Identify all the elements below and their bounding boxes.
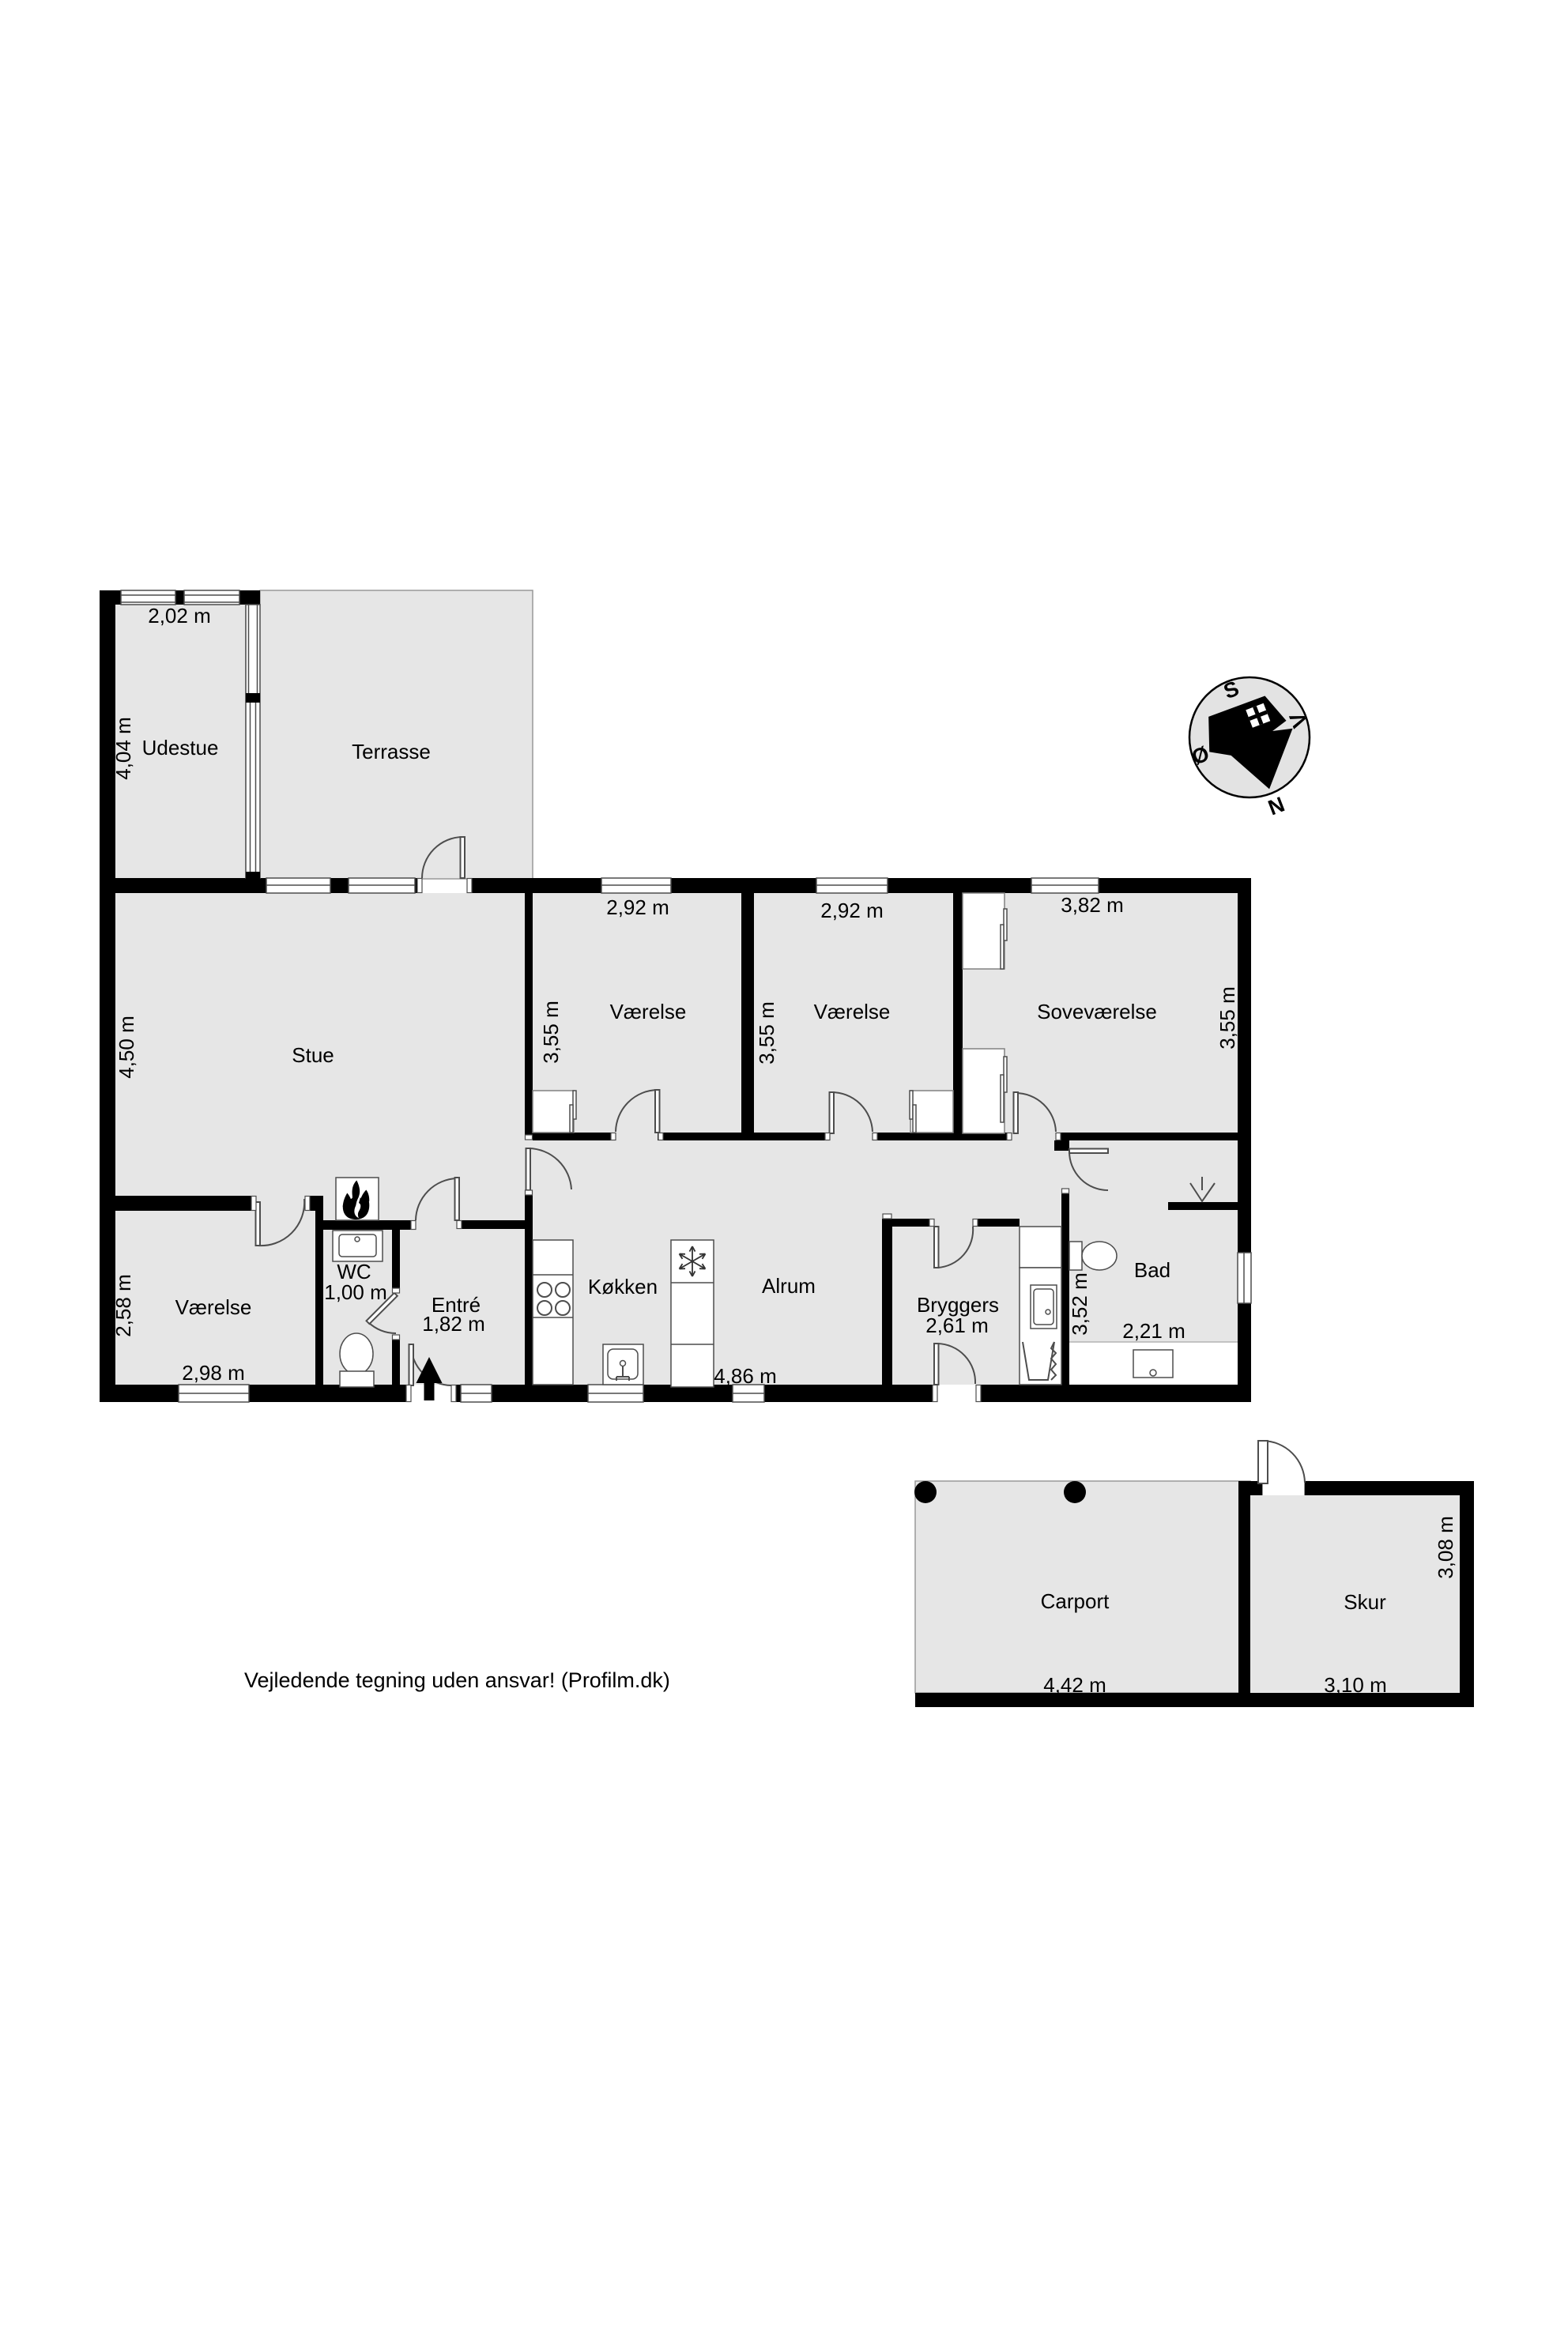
svg-text:2,92 m: 2,92 m	[820, 899, 884, 922]
svg-text:Stue: Stue	[292, 1043, 334, 1067]
svg-text:Bad: Bad	[1134, 1258, 1170, 1282]
svg-text:Vejledende tegning uden ansvar: Vejledende tegning uden ansvar! (Profilm…	[244, 1668, 670, 1692]
svg-text:2,21 m: 2,21 m	[1122, 1319, 1185, 1343]
svg-text:2,92 m: 2,92 m	[606, 895, 669, 919]
svg-text:Køkken: Køkken	[588, 1275, 658, 1298]
svg-text:Udestue: Udestue	[142, 736, 219, 759]
svg-text:1,00 m: 1,00 m	[324, 1280, 387, 1304]
svg-text:Værelse: Værelse	[814, 1000, 891, 1023]
svg-text:3,55 m: 3,55 m	[755, 1001, 778, 1065]
svg-text:3,55 m: 3,55 m	[1216, 986, 1239, 1050]
svg-text:4,50 m: 4,50 m	[115, 1016, 138, 1079]
svg-text:Soveværelse: Soveværelse	[1037, 1000, 1157, 1023]
svg-text:1,82 m: 1,82 m	[422, 1312, 485, 1336]
svg-text:Terrasse: Terrasse	[352, 740, 431, 763]
svg-text:3,55 m: 3,55 m	[539, 1001, 563, 1064]
svg-text:3,08 m: 3,08 m	[1434, 1516, 1457, 1579]
svg-text:Værelse: Værelse	[175, 1295, 252, 1319]
svg-text:3,52 m: 3,52 m	[1068, 1272, 1091, 1336]
svg-text:4,04 m: 4,04 m	[111, 717, 135, 780]
svg-text:Carport: Carport	[1041, 1589, 1110, 1613]
svg-text:Værelse: Værelse	[610, 1000, 687, 1023]
svg-text:2,58 m: 2,58 m	[111, 1274, 135, 1337]
svg-text:4,86 m: 4,86 m	[714, 1364, 777, 1388]
svg-text:2,98 m: 2,98 m	[182, 1361, 245, 1385]
svg-text:2,02 m: 2,02 m	[148, 604, 211, 628]
svg-text:Skur: Skur	[1344, 1590, 1386, 1614]
svg-text:3,10 m: 3,10 m	[1324, 1673, 1387, 1697]
svg-text:2,61 m: 2,61 m	[925, 1314, 989, 1337]
svg-text:Alrum: Alrum	[762, 1274, 816, 1298]
svg-text:3,82 m: 3,82 m	[1061, 893, 1124, 917]
svg-text:4,42 m: 4,42 m	[1043, 1673, 1106, 1697]
